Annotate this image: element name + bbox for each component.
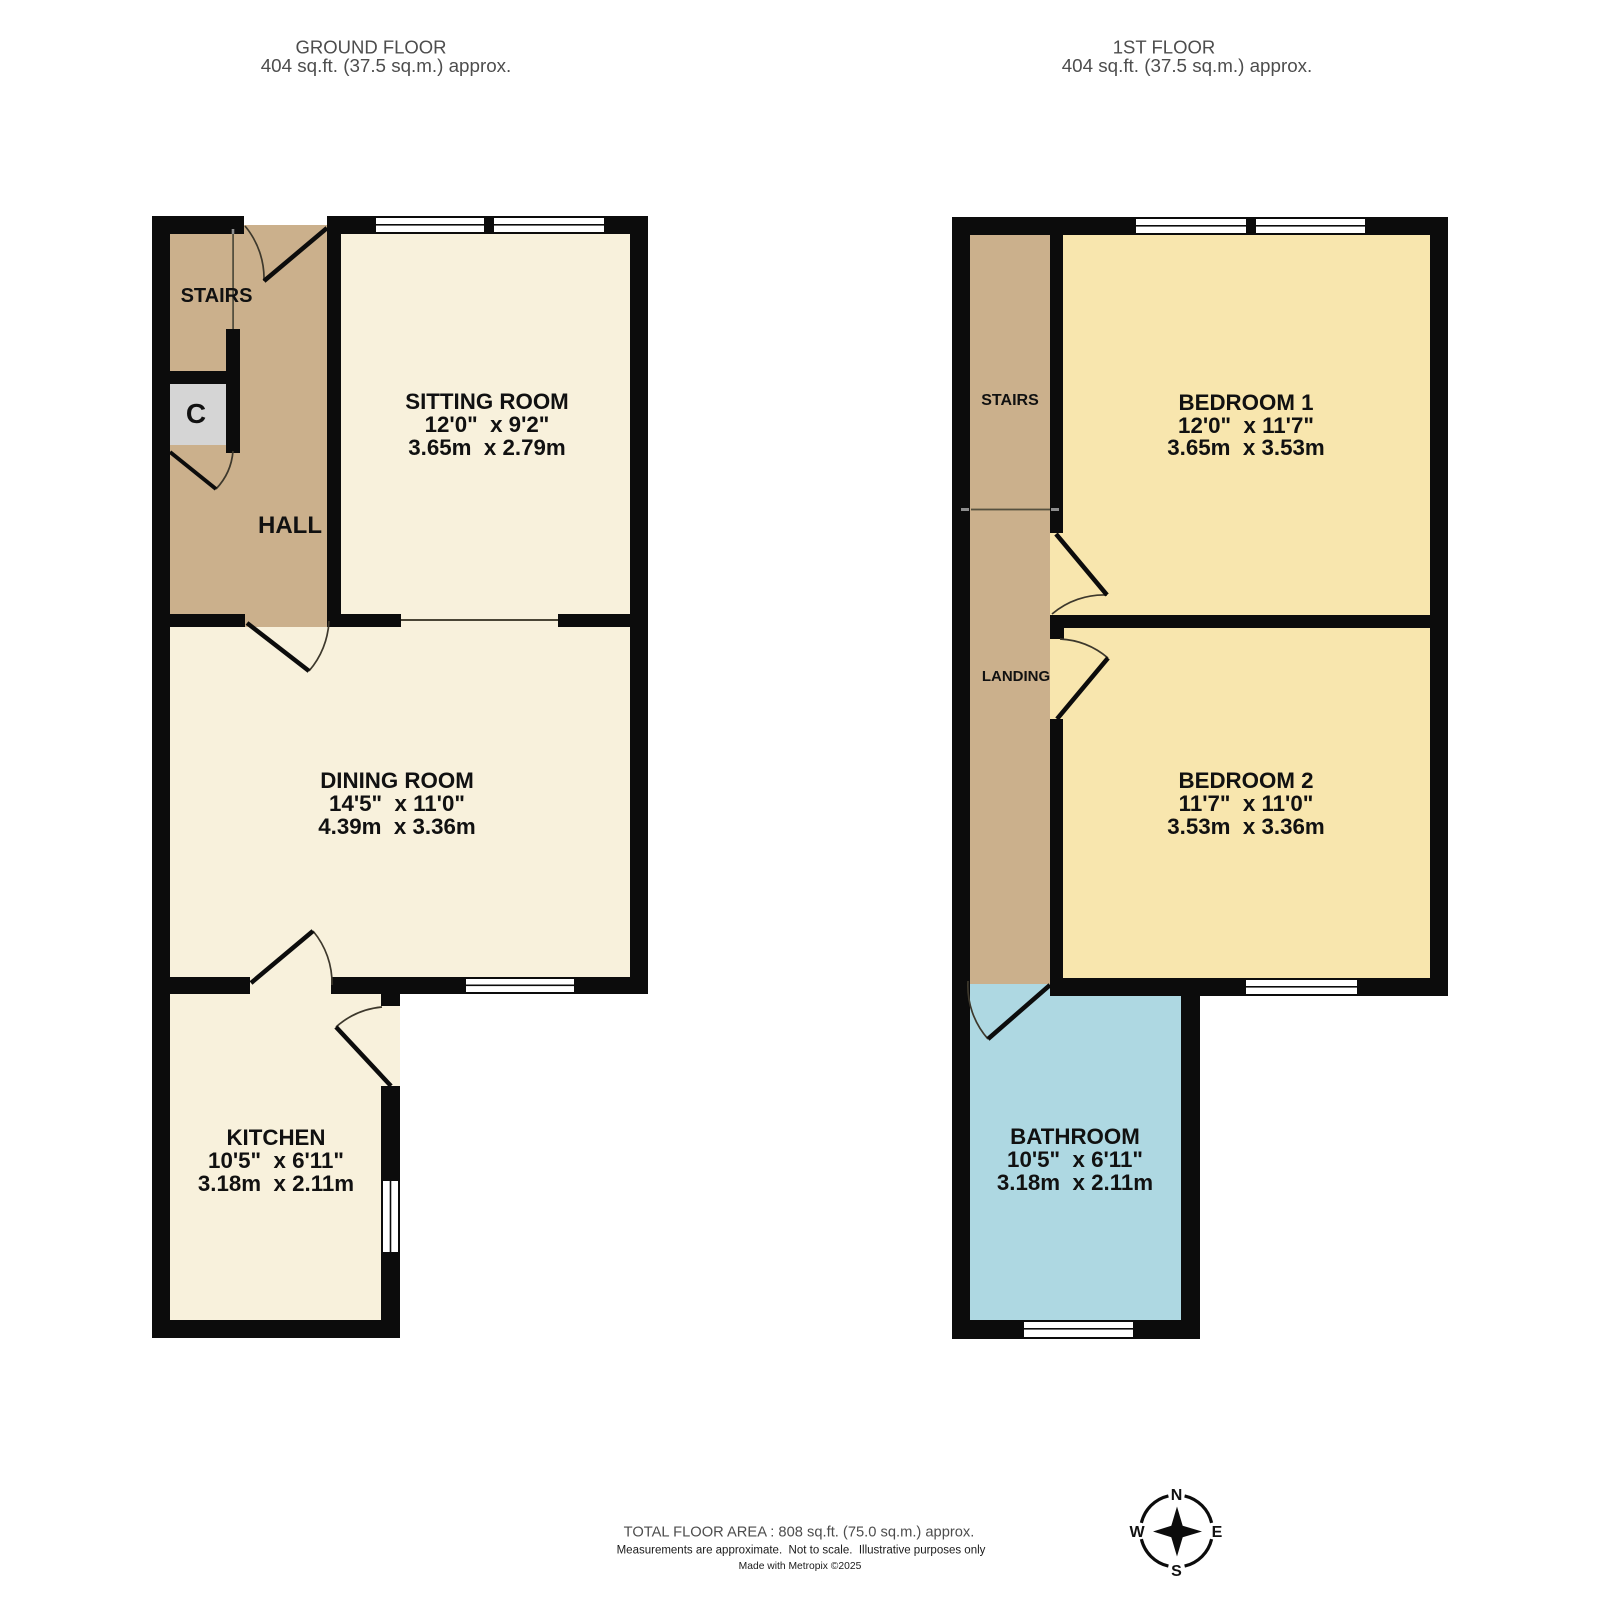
svg-text:404 sq.ft. (37.5 sq.m.) approx: 404 sq.ft. (37.5 sq.m.) approx. [1062, 55, 1313, 76]
svg-text:14'5" x 11'0": 14'5" x 11'0" [329, 791, 465, 816]
svg-text:DINING ROOM: DINING ROOM [320, 768, 474, 793]
svg-text:BEDROOM 1: BEDROOM 1 [1178, 390, 1313, 415]
svg-text:HALL: HALL [258, 512, 322, 539]
svg-text:TOTAL FLOOR AREA : 808 sq.ft.: TOTAL FLOOR AREA : 808 sq.ft. (75.0 sq.m… [624, 1525, 975, 1541]
svg-text:11'7" x 11'0": 11'7" x 11'0" [1179, 791, 1314, 816]
svg-text:BEDROOM 2: BEDROOM 2 [1178, 768, 1313, 793]
svg-text:3.65m x 3.53m: 3.65m x 3.53m [1167, 435, 1324, 460]
svg-text:3.53m x 3.36m: 3.53m x 3.36m [1167, 814, 1324, 839]
svg-text:C: C [186, 398, 206, 429]
svg-text:10'5" x 6'11": 10'5" x 6'11" [1007, 1147, 1143, 1172]
svg-text:Measurements are approximate.: Measurements are approximate. Not to sca… [617, 1545, 986, 1557]
svg-text:SITTING ROOM: SITTING ROOM [405, 389, 569, 414]
svg-text:KITCHEN: KITCHEN [226, 1125, 325, 1150]
svg-text:12'0" x 9'2": 12'0" x 9'2" [425, 412, 550, 437]
svg-text:3.65m x 2.79m: 3.65m x 2.79m [408, 435, 565, 460]
svg-text:E: E [1212, 1524, 1223, 1541]
svg-text:STAIRS: STAIRS [181, 285, 253, 307]
svg-text:N: N [1171, 1487, 1183, 1504]
svg-text:BATHROOM: BATHROOM [1010, 1124, 1140, 1149]
svg-text:3.18m x 2.11m: 3.18m x 2.11m [198, 1171, 354, 1196]
svg-text:4.39m x 3.36m: 4.39m x 3.36m [318, 814, 475, 839]
svg-text:Made with Metropix ©2025: Made with Metropix ©2025 [739, 1561, 862, 1572]
svg-text:LANDING: LANDING [982, 668, 1050, 685]
svg-text:S: S [1171, 1563, 1182, 1580]
svg-text:W: W [1129, 1524, 1145, 1541]
svg-text:404 sq.ft. (37.5 sq.m.) approx: 404 sq.ft. (37.5 sq.m.) approx. [261, 55, 512, 76]
svg-text:STAIRS: STAIRS [981, 392, 1039, 409]
svg-text:3.18m x 2.11m: 3.18m x 2.11m [997, 1170, 1153, 1195]
svg-text:10'5" x 6'11": 10'5" x 6'11" [208, 1148, 344, 1173]
